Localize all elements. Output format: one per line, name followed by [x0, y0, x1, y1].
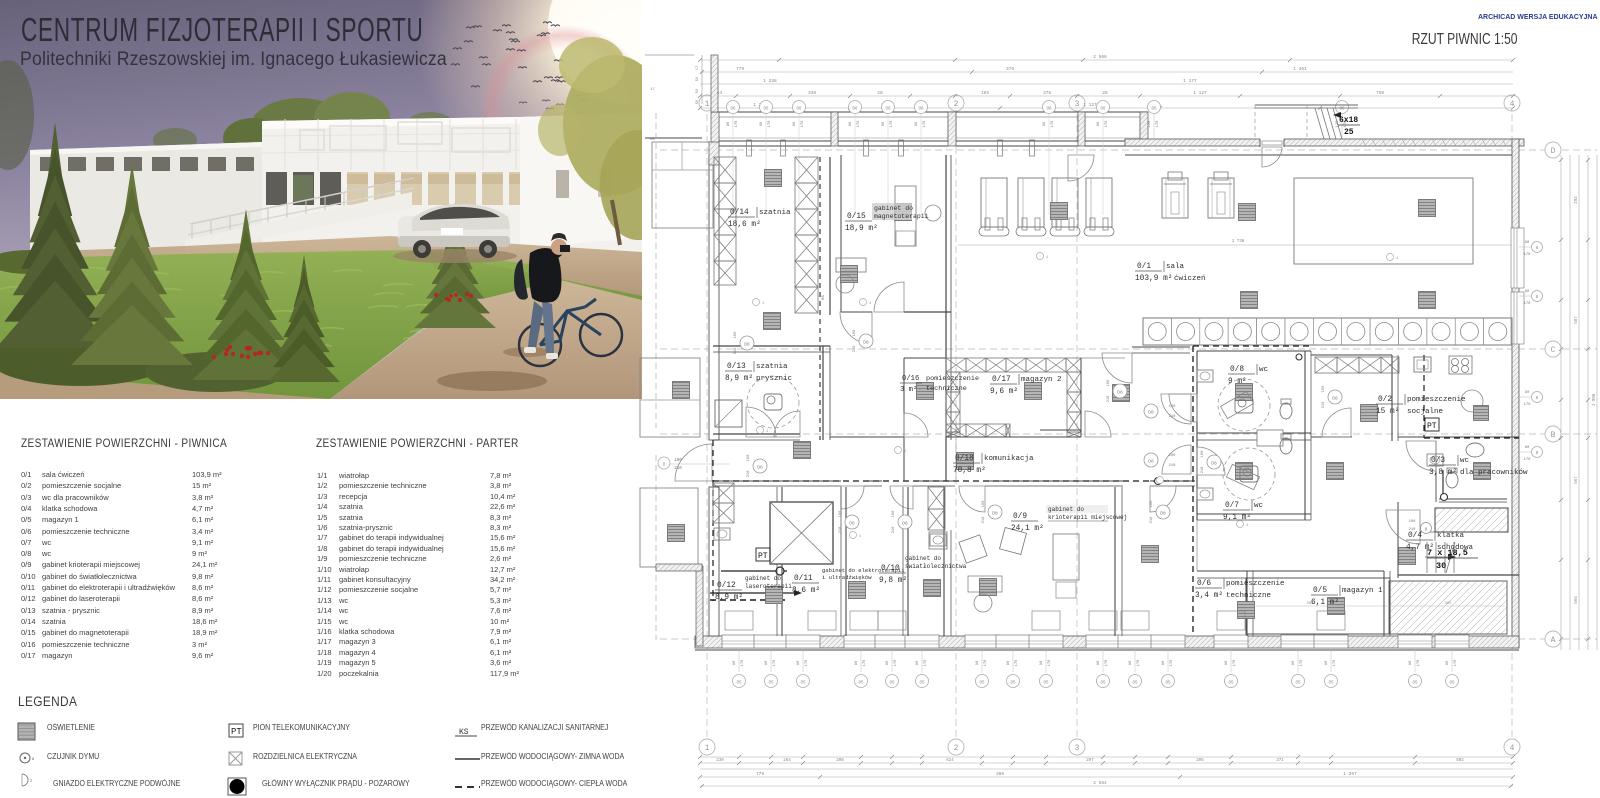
- svg-text:0/12: 0/12: [717, 582, 736, 590]
- svg-text:sala: sala: [1166, 263, 1185, 271]
- svg-text:30: 30: [1436, 561, 1446, 571]
- svg-text:565: 565: [1575, 596, 1579, 604]
- svg-text:8,9 m²: 8,9 m²: [725, 374, 753, 383]
- svg-text:587: 587: [1575, 316, 1579, 324]
- svg-text:gabinet do: gabinet do: [874, 205, 913, 212]
- svg-text:D8: D8: [992, 511, 998, 517]
- svg-text:90: 90: [1325, 660, 1329, 665]
- svg-text:210: 210: [892, 526, 896, 534]
- svg-text:170: 170: [1015, 659, 1019, 667]
- svg-text:O5: O5: [889, 682, 895, 686]
- svg-text:210: 210: [853, 345, 857, 353]
- svg-text:90: 90: [849, 121, 853, 126]
- svg-text:100: 100: [853, 329, 857, 337]
- svg-text:624: 624: [946, 759, 954, 763]
- svg-text:1 357: 1 357: [1343, 771, 1357, 777]
- svg-text:2 566: 2 566: [1093, 54, 1107, 60]
- svg-text:C: C: [1551, 346, 1556, 355]
- svg-text:90: 90: [793, 121, 797, 126]
- svg-text:100: 100: [1409, 520, 1417, 524]
- svg-text:6,1 m²: 6,1 m²: [1311, 598, 1339, 607]
- svg-text:O6: O6: [1046, 108, 1052, 112]
- svg-text:90: 90: [1043, 121, 1047, 126]
- svg-text:pomieszczenie: pomieszczenie: [1407, 396, 1466, 404]
- svg-text:0/11: 0/11: [794, 575, 813, 583]
- svg-text:100: 100: [1107, 379, 1111, 387]
- svg-text:24,1 m²: 24,1 m²: [1011, 524, 1044, 533]
- svg-text:O5: O5: [1328, 682, 1334, 686]
- svg-text:210: 210: [1150, 516, 1154, 524]
- svg-text:90: 90: [1525, 290, 1530, 294]
- svg-text:1 177: 1 177: [1183, 78, 1197, 84]
- svg-text:O5: O5: [800, 682, 806, 686]
- svg-text:O6: O6: [852, 108, 858, 112]
- svg-text:1: 1: [705, 100, 710, 109]
- svg-text:4: 4: [1166, 480, 1168, 484]
- svg-text:18,6 m²: 18,6 m²: [728, 220, 761, 229]
- svg-text:90: 90: [1525, 241, 1530, 245]
- svg-text:170: 170: [1051, 120, 1055, 128]
- svg-text:D8: D8: [902, 521, 908, 527]
- svg-text:208: 208: [836, 759, 844, 763]
- svg-text:100: 100: [1201, 450, 1205, 458]
- svg-text:170: 170: [1417, 659, 1421, 667]
- svg-text:8: 8: [1536, 245, 1539, 251]
- svg-text:90: 90: [976, 660, 980, 665]
- svg-text:O5: O5: [736, 682, 742, 686]
- svg-text:B: B: [1551, 431, 1556, 440]
- svg-text:90: 90: [1409, 660, 1413, 665]
- svg-text:KS: KS: [822, 295, 826, 300]
- svg-text:D8: D8: [1117, 390, 1123, 396]
- svg-text:socjalne: socjalne: [1407, 408, 1443, 416]
- svg-text:0/13: 0/13: [727, 363, 746, 371]
- svg-text:90: 90: [916, 660, 920, 665]
- svg-text:4: 4: [1396, 257, 1398, 261]
- svg-text:170: 170: [894, 659, 898, 667]
- svg-text:O5: O5: [1010, 682, 1016, 686]
- svg-text:D: D: [1551, 147, 1556, 156]
- svg-text:18,9 m²: 18,9 m²: [845, 224, 878, 233]
- svg-text:4: 4: [762, 302, 764, 306]
- svg-text:1 998: 1 998: [1593, 393, 1597, 406]
- svg-text:techniczne: techniczne: [926, 385, 967, 393]
- svg-text:4: 4: [1510, 744, 1515, 753]
- svg-text:90: 90: [1525, 391, 1530, 395]
- svg-text:O6: O6: [796, 108, 802, 112]
- svg-text:0/4: 0/4: [1408, 532, 1422, 540]
- svg-text:380: 380: [996, 771, 1004, 777]
- svg-text:O5: O5: [979, 682, 985, 686]
- svg-text:264: 264: [783, 759, 791, 763]
- svg-text:krioterapii miejscowej: krioterapii miejscowej: [1048, 514, 1127, 521]
- svg-text:365: 365: [1444, 602, 1452, 606]
- svg-text:230: 230: [716, 759, 724, 763]
- svg-text:90: 90: [797, 660, 801, 665]
- svg-text:4: 4: [1046, 256, 1048, 260]
- svg-text:O5: O5: [1228, 682, 1234, 686]
- svg-text:100: 100: [982, 500, 986, 508]
- svg-text:338: 338: [808, 90, 816, 96]
- svg-text:210: 210: [982, 516, 986, 524]
- svg-text:O6: O6: [763, 108, 769, 112]
- svg-text:170: 170: [768, 120, 772, 128]
- svg-text:8,6 m²: 8,6 m²: [792, 586, 820, 595]
- svg-text:prysznic: prysznic: [756, 375, 792, 383]
- svg-text:170: 170: [773, 659, 777, 667]
- svg-text:techniczne: techniczne: [1226, 592, 1271, 600]
- svg-text:ARCHICAD WERSJA EDUKACYJNA: ARCHICAD WERSJA EDUKACYJNA: [1478, 14, 1598, 21]
- svg-text:2: 2: [954, 744, 959, 753]
- svg-text:170: 170: [1333, 659, 1337, 667]
- svg-text:376: 376: [1043, 90, 1051, 96]
- svg-text:3 m²: 3 m²: [900, 385, 917, 394]
- svg-text:170: 170: [1156, 120, 1160, 128]
- svg-text:O6: O6: [885, 108, 891, 112]
- svg-text:170: 170: [1105, 659, 1109, 667]
- svg-text:90: 90: [915, 121, 919, 126]
- svg-text:pomieszczenie: pomieszczenie: [926, 375, 979, 383]
- svg-text:gabinet do: gabinet do: [905, 555, 941, 562]
- svg-text:90: 90: [1007, 660, 1011, 665]
- svg-text:O6: O6: [1100, 108, 1106, 112]
- svg-text:170: 170: [1048, 659, 1052, 667]
- svg-text:magnetoterapii: magnetoterapii: [874, 213, 929, 220]
- svg-text:9 m²: 9 m²: [1228, 377, 1247, 386]
- svg-text:4,7 m²: 4,7 m²: [1406, 543, 1434, 552]
- svg-text:9,6 m²: 9,6 m²: [990, 387, 1018, 396]
- svg-text:170: 170: [984, 659, 988, 667]
- svg-text:170: 170: [1524, 458, 1532, 462]
- svg-text:100: 100: [892, 510, 896, 518]
- svg-text:170: 170: [801, 120, 805, 128]
- svg-text:D8: D8: [757, 465, 763, 471]
- svg-text:210: 210: [747, 470, 751, 478]
- svg-text:0/1: 0/1: [1137, 263, 1151, 271]
- svg-text:70,8 m²: 70,8 m²: [953, 466, 986, 475]
- svg-text:ćwiczeń: ćwiczeń: [1174, 275, 1206, 283]
- svg-text:28: 28: [877, 90, 883, 96]
- svg-text:szatnia: szatnia: [759, 209, 791, 217]
- svg-text:8,9 m²: 8,9 m²: [715, 593, 743, 602]
- svg-text:90: 90: [1446, 660, 1450, 665]
- svg-text:17: 17: [650, 88, 655, 92]
- svg-text:4: 4: [904, 450, 906, 454]
- svg-text:O5: O5: [919, 682, 925, 686]
- svg-text:210: 210: [839, 526, 843, 534]
- svg-text:170: 170: [1137, 659, 1141, 667]
- svg-text:światłolecznictwa: światłolecznictwa: [905, 563, 967, 570]
- svg-text:RZUT PIWNIC 1:50: RZUT PIWNIC 1:50: [1412, 30, 1518, 48]
- svg-text:wc: wc: [1460, 457, 1469, 465]
- svg-text:O5: O5: [1412, 682, 1418, 686]
- svg-text:376: 376: [1006, 66, 1014, 72]
- svg-text:90: 90: [1097, 660, 1101, 665]
- svg-text:gabinet do: gabinet do: [745, 575, 781, 582]
- svg-text:1 361: 1 361: [1293, 66, 1307, 72]
- svg-text:170: 170: [741, 659, 745, 667]
- svg-text:D8: D8: [1148, 459, 1154, 465]
- svg-text:O6: O6: [918, 108, 924, 112]
- svg-text:100: 100: [1322, 385, 1326, 393]
- svg-text:pomieszczenie: pomieszczenie: [1226, 580, 1285, 588]
- svg-text:170: 170: [1524, 253, 1532, 257]
- svg-text:6x18: 6x18: [1339, 116, 1358, 125]
- svg-text:750: 750: [1376, 90, 1384, 96]
- svg-text:A: A: [1551, 636, 1556, 645]
- svg-text:17: 17: [696, 66, 700, 71]
- svg-text:210: 210: [1169, 415, 1177, 419]
- svg-text:PT: PT: [1427, 422, 1437, 431]
- svg-text:D8: D8: [1160, 511, 1166, 517]
- svg-text:170: 170: [923, 120, 927, 128]
- svg-text:90: 90: [1040, 660, 1044, 665]
- svg-text:i ultradźwięków: i ultradźwięków: [822, 574, 872, 581]
- svg-text:170: 170: [1454, 659, 1458, 667]
- svg-text:170: 170: [1233, 659, 1237, 667]
- svg-text:2: 2: [954, 100, 959, 109]
- svg-text:90: 90: [765, 660, 769, 665]
- svg-text:3,4 m²: 3,4 m²: [1195, 591, 1223, 600]
- svg-text:8: 8: [1536, 450, 1539, 456]
- svg-text:90: 90: [855, 660, 859, 665]
- svg-text:O5: O5: [1100, 682, 1106, 686]
- svg-text:O6: O6: [730, 108, 736, 112]
- svg-text:103,9 m²: 103,9 m²: [1135, 274, 1172, 283]
- svg-text:90: 90: [727, 121, 731, 126]
- svg-text:2 584: 2 584: [1093, 780, 1107, 786]
- svg-text:O5: O5: [1295, 682, 1301, 686]
- svg-text:0/17: 0/17: [992, 376, 1011, 384]
- svg-text:100: 100: [734, 331, 738, 339]
- svg-text:15 m²: 15 m²: [1376, 407, 1399, 416]
- svg-text:502: 502: [1456, 759, 1464, 763]
- svg-text:D8: D8: [849, 521, 855, 527]
- svg-text:292: 292: [1575, 196, 1579, 204]
- svg-text:0/15: 0/15: [847, 213, 866, 221]
- svg-text:0/3: 0/3: [1431, 457, 1445, 465]
- svg-text:25: 25: [1344, 128, 1354, 137]
- svg-text:170: 170: [1524, 403, 1532, 407]
- svg-text:779: 779: [736, 66, 744, 72]
- svg-text:magazyn 1: magazyn 1: [1342, 587, 1383, 595]
- svg-text:100: 100: [1150, 500, 1154, 508]
- svg-text:9,1 m²: 9,1 m²: [1223, 513, 1251, 522]
- svg-text:0/16: 0/16: [902, 375, 919, 383]
- svg-text:1: 1: [705, 744, 710, 753]
- svg-text:O5: O5: [1165, 682, 1171, 686]
- svg-text:D8: D8: [863, 340, 869, 346]
- svg-text:210: 210: [1107, 395, 1111, 403]
- svg-text:90: 90: [1225, 660, 1229, 665]
- svg-text:90: 90: [1097, 121, 1101, 126]
- svg-text:90: 90: [1162, 660, 1166, 665]
- svg-text:170: 170: [735, 120, 739, 128]
- svg-text:90: 90: [1292, 660, 1296, 665]
- svg-text:0/9: 0/9: [1013, 513, 1027, 521]
- svg-text:100: 100: [674, 459, 682, 463]
- svg-text:170: 170: [1105, 120, 1109, 128]
- svg-text:schodowa: schodowa: [1437, 544, 1474, 552]
- svg-text:4: 4: [766, 430, 768, 434]
- svg-text:100: 100: [839, 510, 843, 518]
- svg-text:0/5: 0/5: [1313, 587, 1327, 595]
- svg-text:gabinet do: gabinet do: [1048, 506, 1084, 513]
- svg-text:170: 170: [805, 659, 809, 667]
- svg-text:laseroterapii: laseroterapii: [745, 583, 792, 590]
- svg-text:0/18: 0/18: [955, 455, 974, 463]
- svg-text:170: 170: [857, 120, 861, 128]
- svg-text:magazyn 2: magazyn 2: [1021, 376, 1062, 384]
- svg-text:0/6: 0/6: [1197, 580, 1211, 588]
- svg-text:3: 3: [1075, 744, 1080, 753]
- svg-text:50: 50: [696, 99, 700, 104]
- svg-text:komunikacja: komunikacja: [984, 455, 1034, 463]
- svg-text:170: 170: [924, 659, 928, 667]
- svg-text:O5: O5: [1132, 682, 1138, 686]
- svg-text:90: 90: [1525, 446, 1530, 450]
- svg-text:210: 210: [1322, 401, 1326, 409]
- svg-text:0/8: 0/8: [1230, 366, 1244, 374]
- svg-text:28: 28: [1102, 90, 1108, 96]
- svg-text:0/7: 0/7: [1225, 502, 1239, 510]
- svg-text:50: 50: [696, 76, 700, 81]
- svg-text:210: 210: [734, 347, 738, 355]
- svg-text:371: 371: [1276, 759, 1284, 763]
- svg-text:O5: O5: [858, 682, 864, 686]
- svg-text:50: 50: [696, 88, 700, 93]
- svg-text:0/14: 0/14: [730, 209, 749, 217]
- svg-text:0/2: 0/2: [1378, 396, 1392, 404]
- svg-text:170: 170: [1524, 302, 1532, 306]
- svg-text:gabinet do elektroterapii: gabinet do elektroterapii: [822, 567, 905, 574]
- svg-text:100: 100: [1169, 454, 1177, 458]
- svg-text:210: 210: [1201, 466, 1205, 474]
- svg-text:O5: O5: [1043, 682, 1049, 686]
- svg-text:8: 8: [1536, 395, 1539, 401]
- svg-text:90: 90: [886, 660, 890, 665]
- svg-text:4: 4: [1246, 524, 1248, 528]
- svg-text:8: 8: [1536, 294, 1539, 300]
- svg-text:207: 207: [1086, 759, 1094, 763]
- svg-text:205: 205: [1196, 759, 1204, 763]
- svg-text:170: 170: [890, 120, 894, 128]
- svg-text:D8: D8: [1332, 396, 1338, 402]
- svg-text:PT: PT: [758, 552, 768, 561]
- svg-text:50: 50: [650, 138, 655, 142]
- svg-text:165: 165: [981, 90, 989, 96]
- svg-text:120: 120: [1148, 120, 1152, 128]
- svg-text:dla pracowników: dla pracowników: [1460, 469, 1528, 477]
- svg-text:szatnia: szatnia: [756, 363, 788, 371]
- svg-text:8: 8: [1425, 527, 1428, 533]
- svg-text:wc: wc: [1254, 502, 1263, 510]
- svg-text:90: 90: [733, 660, 737, 665]
- svg-text:3: 3: [1075, 100, 1080, 109]
- svg-text:90: 90: [1129, 660, 1133, 665]
- svg-text:D8: D8: [1148, 410, 1154, 416]
- svg-text:170: 170: [1300, 659, 1304, 667]
- svg-text:9,8 m²: 9,8 m²: [879, 576, 907, 585]
- svg-text:567: 567: [1575, 476, 1579, 484]
- svg-text:4: 4: [859, 535, 861, 539]
- svg-text:1 127: 1 127: [1193, 90, 1207, 96]
- svg-text:90: 90: [760, 121, 764, 126]
- svg-text:wc: wc: [1259, 366, 1268, 374]
- svg-text:8: 8: [663, 462, 666, 468]
- svg-text:O5: O5: [768, 682, 774, 686]
- svg-text:D8: D8: [744, 342, 750, 348]
- svg-text:O5: O5: [1449, 682, 1455, 686]
- svg-text:D8: D8: [1211, 461, 1217, 467]
- svg-text:3,8 m²: 3,8 m²: [1429, 468, 1457, 477]
- svg-text:210: 210: [1169, 464, 1177, 468]
- svg-text:779: 779: [756, 771, 764, 777]
- svg-text:90: 90: [882, 121, 886, 126]
- svg-text:klatka: klatka: [1437, 532, 1465, 540]
- svg-text:1 127: 1 127: [1083, 102, 1097, 108]
- svg-text:4: 4: [869, 302, 871, 306]
- svg-text:100: 100: [747, 454, 751, 462]
- svg-text:210: 210: [674, 467, 682, 471]
- svg-text:1 338: 1 338: [763, 78, 777, 84]
- svg-text:O6: O6: [1151, 108, 1157, 112]
- svg-text:170: 170: [1170, 659, 1174, 667]
- svg-text:1 738: 1 738: [1232, 240, 1245, 244]
- svg-text:170: 170: [863, 659, 867, 667]
